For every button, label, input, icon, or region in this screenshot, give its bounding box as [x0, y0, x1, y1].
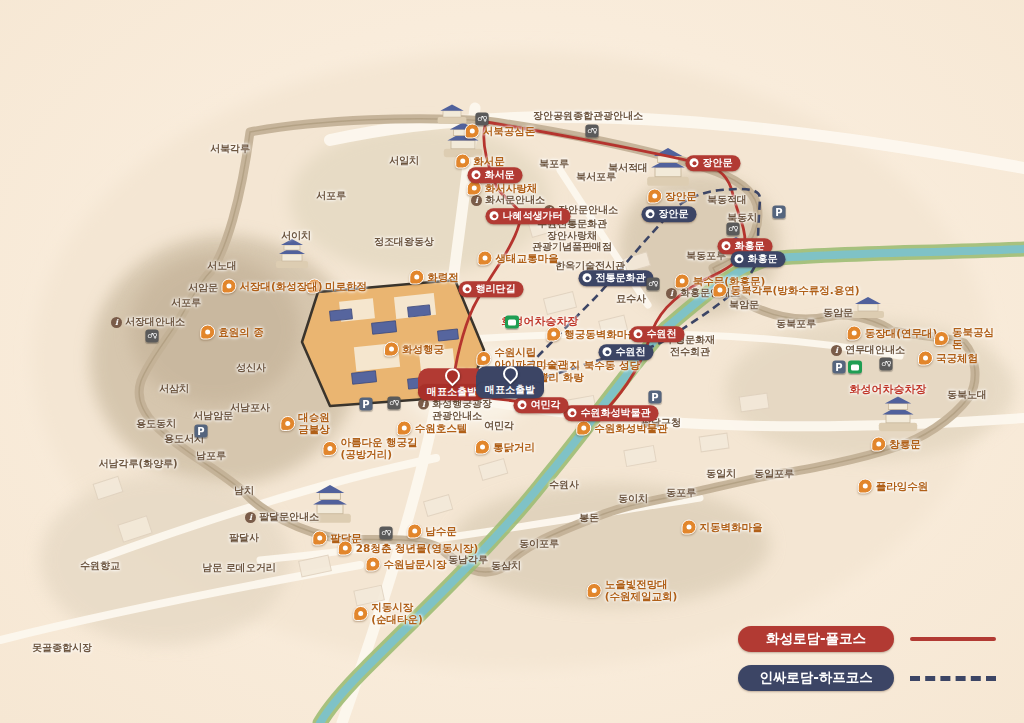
place-dongnamgangnu: 동남각루: [448, 554, 488, 566]
poi-pin-icon: [871, 437, 886, 452]
bus-icon: [505, 316, 519, 329]
place-dongbukporu: 동북포루: [776, 318, 816, 330]
info-icon: i: [666, 288, 677, 299]
full-course-stop-naehyeseok: 나혜석생가터: [486, 208, 571, 224]
legend-half-course: 인싸로담-하프코스: [738, 665, 996, 691]
poi-dongbuk-gongsimdon: 동북공심돈: [934, 326, 994, 350]
place-bongdon: 봉돈: [579, 512, 599, 524]
poi-pin-icon: [847, 326, 862, 341]
place-bukseojeokdae: 북서적대: [608, 162, 648, 174]
route-stop-dot: [568, 409, 577, 418]
place-dongichi: 동이치: [618, 493, 648, 505]
place-myosusa: 묘수사: [616, 293, 646, 305]
place-dongbuknodae: 동북노대: [947, 389, 987, 401]
route-stop-dot: [463, 285, 472, 294]
half-course-start-ticket-office: 매표소출발: [476, 366, 544, 398]
poi-pin-icon: [353, 606, 368, 621]
route-stop-dot: [634, 330, 643, 339]
restroom-icon: ♂♀: [380, 527, 393, 540]
restroom-icon: ♂♀: [146, 330, 159, 343]
poi-changnyongmun: 창룡문: [871, 437, 921, 452]
restroom-icon: ♂♀: [388, 397, 401, 410]
poi-hwaseomun: 화서문: [455, 154, 505, 169]
place-yongdodongchi: 용도동치: [136, 418, 176, 430]
place-seongsinsa: 성신사: [236, 362, 266, 374]
poi-pin-icon: [587, 583, 602, 598]
trolley-stop-east: 화성어차승차장: [850, 384, 927, 397]
place-seosamchi: 서삼치: [159, 383, 189, 395]
place-seoporu-1: 서포루: [316, 190, 346, 202]
poi-pin-icon: [546, 327, 561, 342]
poi-pin-icon: [858, 479, 873, 494]
route-stop-dot: [518, 401, 527, 410]
legend-full-course-label: 화성로담-풀코스: [738, 626, 894, 652]
poi-nammun-market: 수원남문시장: [366, 557, 447, 572]
place-yeomingak: 여민각: [484, 420, 514, 432]
poi-namsumun: 남수문: [407, 524, 457, 539]
poi-dongjangdae: 동장대(연무대): [847, 326, 938, 341]
poi-pin-icon: [465, 124, 480, 139]
poi-flying-suwon: 플라잉수원: [858, 479, 929, 494]
place-suwonsa: 수원사: [549, 479, 579, 491]
poi-pin-icon: [200, 325, 215, 340]
place-dongiporu: 동이포루: [519, 538, 559, 550]
poi-pin-icon: [384, 342, 399, 357]
poi-suwon-hostel: 수원호스텔: [397, 421, 468, 436]
poi-pin-icon: [476, 351, 491, 366]
map-labels-layer: 장안공원종합관광안내소서북각루서일치서포루서이치정조대왕동상서노대서암문서포루i…: [0, 0, 1024, 723]
poi-daeseungwon-buddha: 대승원 금불상: [280, 411, 330, 435]
full-course-stop-suwoncheon: 수원천: [630, 326, 685, 342]
poi-hyowon-bell: 효원의 종: [200, 325, 264, 340]
poi-janganmun: 장안문: [647, 189, 697, 204]
place-hwaseomun-info: i화서문안내소: [471, 194, 545, 206]
place-bugammun: 북암문: [729, 299, 759, 311]
poi-ecomobility-village: 생태교통마을: [478, 251, 559, 266]
poi-hwaseong-museum: 수원화성박물관: [576, 421, 668, 436]
poi-pin-icon: [409, 270, 424, 285]
info-icon: i: [471, 195, 482, 206]
restroom-icon: ♂♀: [880, 358, 893, 371]
place-seoporu-2: 서포루: [171, 297, 201, 309]
legend-half-course-line: [910, 676, 996, 681]
full-course-stop-haengnidan-gil: 행리단길: [459, 281, 524, 297]
route-stop-dot: [690, 159, 699, 168]
info-icon: i: [245, 512, 256, 523]
route-stop-dot: [646, 210, 655, 219]
poi-hwaryeongjeon: 화령전: [409, 270, 459, 285]
legend-half-course-label: 인싸로담-하프코스: [738, 665, 894, 691]
place-seonamgangnu: 서남각루(화양루): [98, 458, 177, 470]
info-icon: i: [831, 345, 842, 356]
place-jangan-park-tourist-info: 장안공원종합관광안내소: [533, 110, 643, 122]
poi-pin-icon: [467, 181, 482, 196]
poi-pin-icon: [478, 251, 493, 266]
place-king-jeongjo-statue: 정조대왕동상: [374, 236, 434, 248]
legend-full-course: 화성로담-풀코스: [738, 626, 996, 652]
place-haenggung-plaza-info: i화성행궁광장 관광안내소: [418, 398, 492, 421]
parking-icon: P: [195, 425, 208, 438]
legend-full-course-line: [910, 637, 996, 641]
poi-pin-icon: [647, 189, 662, 204]
poi-hwaseo-sarangchae: 화서사랑채: [467, 181, 538, 196]
place-dongporu: 동포루: [666, 487, 696, 499]
info-icon: i: [418, 399, 429, 410]
place-seobukgangnu: 서북각루: [210, 143, 250, 155]
info-icon: i: [111, 317, 122, 328]
place-seonam-ammun: 서남암문: [193, 410, 233, 422]
poi-pin-icon: [221, 279, 236, 294]
poi-pin-icon: [322, 441, 337, 456]
parking-icon: P: [773, 206, 786, 219]
poi-pin-icon: [675, 274, 690, 289]
start-pin-icon: [499, 363, 520, 384]
full-course-stop-yeomingak: 여민각: [514, 397, 569, 413]
half-course-stop-janganmun: 장안문: [642, 206, 697, 222]
poi-jidong-mural-village: 지동벽화마을: [682, 520, 763, 535]
poi-sunset-observatory: 노을빛전망대 (수원제일교회): [587, 578, 678, 602]
poi-haenggung-gil: 아름다운 행궁길 (공방거리): [322, 436, 417, 460]
route-stop-dot: [472, 171, 481, 180]
poi-pin-icon: [712, 283, 727, 298]
poi-pin-icon: [682, 520, 697, 535]
poi-dongbukgangnu: 동북각루(방화수류정.용연): [712, 283, 859, 298]
restroom-icon: ♂♀: [476, 113, 489, 126]
poi-hwaseong-haenggung: 화성행궁: [384, 342, 444, 357]
place-seoammun: 서암문: [188, 282, 218, 294]
route-stop-dot: [722, 242, 731, 251]
poi-pin-icon: [397, 421, 412, 436]
route-stop-dot: [583, 274, 592, 283]
half-course-stop-hwahongmun: 화홍문: [731, 251, 786, 267]
poi-pin-icon: [366, 557, 381, 572]
place-dongsamchi: 동삼치: [491, 560, 521, 572]
bus-icon: [848, 361, 862, 374]
poi-seojangdae: 서장대(화성장대): [221, 279, 322, 294]
place-seojangdae-info: i서장대안내소: [111, 316, 185, 328]
restroom-icon: ♂♀: [727, 223, 740, 236]
place-seoilchi: 서일치: [389, 155, 419, 167]
place-bukporu: 북포루: [539, 158, 569, 170]
poi-tongdak-street: 통닭거리: [475, 440, 535, 455]
half-course-stop-culture-center: 전통문화관: [579, 270, 654, 286]
start-pin-icon: [441, 365, 462, 386]
place-bukdongjeokdae: 북동적대: [707, 194, 747, 206]
place-seonodae: 서노대: [207, 260, 237, 272]
poi-pin-icon: [312, 531, 327, 546]
full-course-stop-museum: 수원화성박물관: [564, 405, 659, 421]
place-seoichi: 서이치: [281, 230, 311, 242]
place-paldalmun-info: i팔달문안내소: [245, 511, 319, 523]
place-seonamposa: 서남포사: [230, 402, 270, 414]
poi-28-youth-mall: 28청춘 청년몰(영동시장): [338, 541, 478, 556]
poi-jidong-market: 지동시장 (순대타운): [353, 601, 423, 625]
place-dongammun: 동암문: [823, 307, 853, 319]
place-paldalsa: 팔달사: [229, 532, 259, 544]
route-stop-dot: [490, 212, 499, 221]
place-dongilporu: 동일포루: [754, 468, 794, 480]
poi-mural-village: 행궁동벽화마을: [546, 327, 638, 342]
full-course-stop-janganmun: 장안문: [686, 155, 741, 171]
poi-pin-icon: [407, 524, 422, 539]
place-suwon-hyanggyo: 수원향교: [80, 560, 120, 572]
poi-pin-icon: [455, 154, 470, 169]
poi-seobuk-gongsimdon: 서북공심돈: [465, 124, 536, 139]
poi-pin-icon: [918, 351, 933, 366]
restroom-icon: ♂♀: [647, 278, 660, 291]
poi-pin-icon: [576, 421, 591, 436]
parking-icon: P: [360, 398, 373, 411]
restroom-icon: ♂♀: [586, 125, 599, 138]
place-motgol-market: 못골종합시장: [32, 642, 92, 654]
place-namchi: 남치: [234, 485, 254, 497]
suwon-hwaseong-tour-map: 장안공원종합관광안내소서북각루서일치서포루서이치정조대왕동상서노대서암문서포루i…: [0, 0, 1024, 723]
place-nammun-rodeo-street: 남문 로데오거리: [202, 562, 275, 574]
poi-pin-icon: [280, 416, 295, 431]
poi-archery-experience: 국궁체험: [918, 351, 978, 366]
place-namporu: 남포루: [196, 450, 226, 462]
route-stop-dot: [603, 348, 612, 357]
place-dongilchi: 동일치: [706, 468, 736, 480]
place-yeonmudae-info: i연무대안내소: [831, 344, 905, 356]
legend: 화성로담-풀코스 인싸로담-하프코스: [738, 626, 996, 691]
poi-pin-icon: [934, 331, 949, 346]
poi-pin-icon: [475, 440, 490, 455]
poi-pin-icon: [338, 541, 353, 556]
parking-icon: P: [833, 361, 846, 374]
parking-icon: P: [649, 391, 662, 404]
route-stop-dot: [735, 255, 744, 264]
half-course-stop-suwoncheon: 수원천: [599, 344, 654, 360]
full-course-stop-hwaseomun: 화서문: [468, 167, 523, 183]
